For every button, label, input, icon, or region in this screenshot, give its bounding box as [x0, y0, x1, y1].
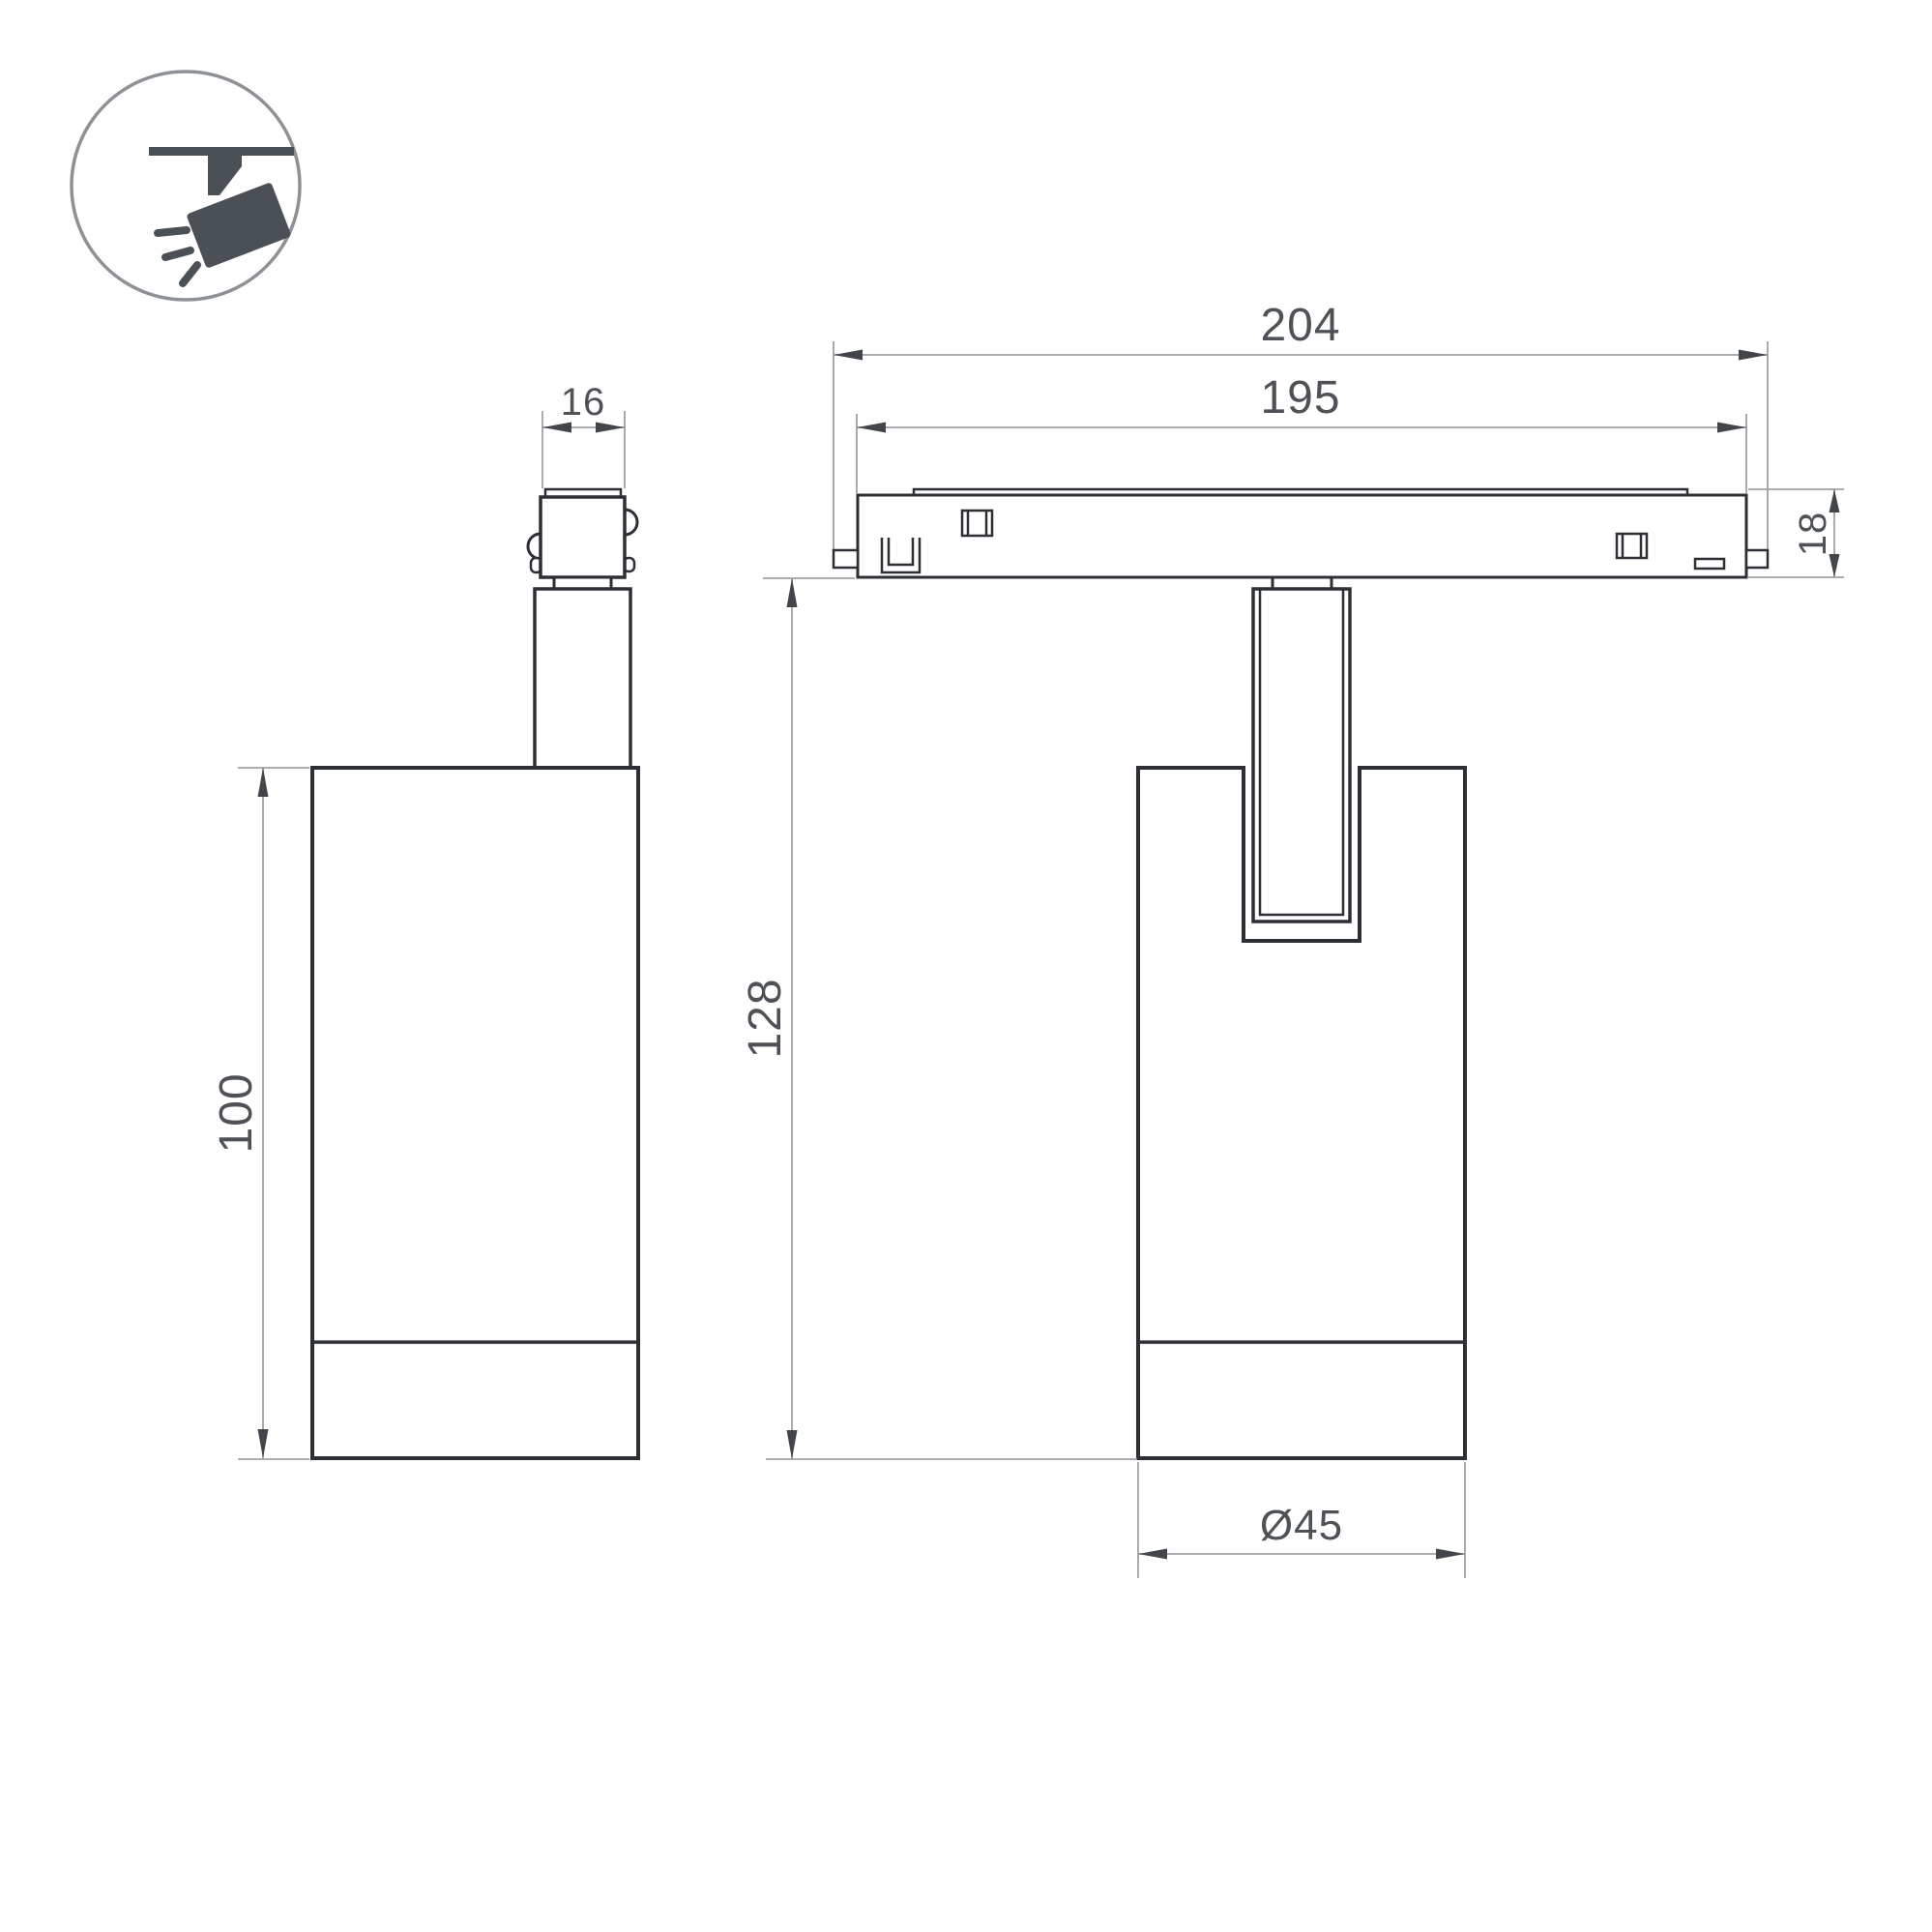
arrowhead [1436, 1549, 1465, 1560]
arrowhead [834, 350, 863, 361]
side-view: 16 100 [211, 381, 638, 1459]
arrowhead [258, 1429, 269, 1458]
drawing-page: 16 100 [0, 0, 1932, 1932]
stem-connector [1273, 577, 1332, 589]
arrowhead [542, 423, 571, 433]
dim-label-18: 18 [1792, 512, 1834, 557]
dim-label-16: 16 [561, 381, 606, 424]
arrowhead [787, 1430, 798, 1459]
dim-label-100: 100 [211, 1072, 262, 1153]
adapter-neck [554, 577, 611, 589]
side-view-stem [535, 589, 630, 768]
adapter-clip-left [528, 534, 541, 559]
arrowhead [596, 423, 625, 433]
track-end-tab-right [1746, 550, 1768, 568]
adapter-clip-right [625, 510, 637, 535]
body-outline [312, 768, 638, 1458]
icon-track-bar [149, 147, 294, 156]
side-view-body [312, 768, 638, 1458]
track-end-tab-left [834, 550, 858, 568]
dim-adapter-width: 16 [542, 381, 625, 488]
front-view: 204 195 [740, 300, 1844, 1578]
arrowhead [1717, 423, 1746, 433]
dim-drop-height: 128 [740, 578, 1137, 1459]
dim-body-height: 100 [211, 768, 309, 1459]
stem-outer [1253, 589, 1350, 922]
arrowhead [258, 768, 269, 797]
dim-label-195: 195 [1260, 372, 1340, 424]
front-view-track [834, 489, 1768, 577]
dimension-drawing: 16 100 [0, 0, 1932, 1932]
arrowhead [787, 578, 798, 607]
arrowhead [1830, 554, 1840, 577]
arrowhead [857, 423, 886, 433]
dim-label-204: 204 [1260, 300, 1340, 351]
arrowhead [1138, 1549, 1167, 1560]
dim-label-128: 128 [740, 978, 791, 1058]
dim-body-diameter: Ø45 [1138, 1462, 1465, 1578]
arrowhead [1739, 350, 1768, 361]
front-view-stem [1253, 577, 1350, 922]
dim-label-d45: Ø45 [1260, 1502, 1343, 1549]
arrowhead [1830, 489, 1840, 512]
dim-track-inner: 195 [857, 372, 1746, 493]
side-view-adapter [528, 489, 637, 589]
adapter-body [541, 497, 625, 577]
product-icon [72, 72, 300, 300]
